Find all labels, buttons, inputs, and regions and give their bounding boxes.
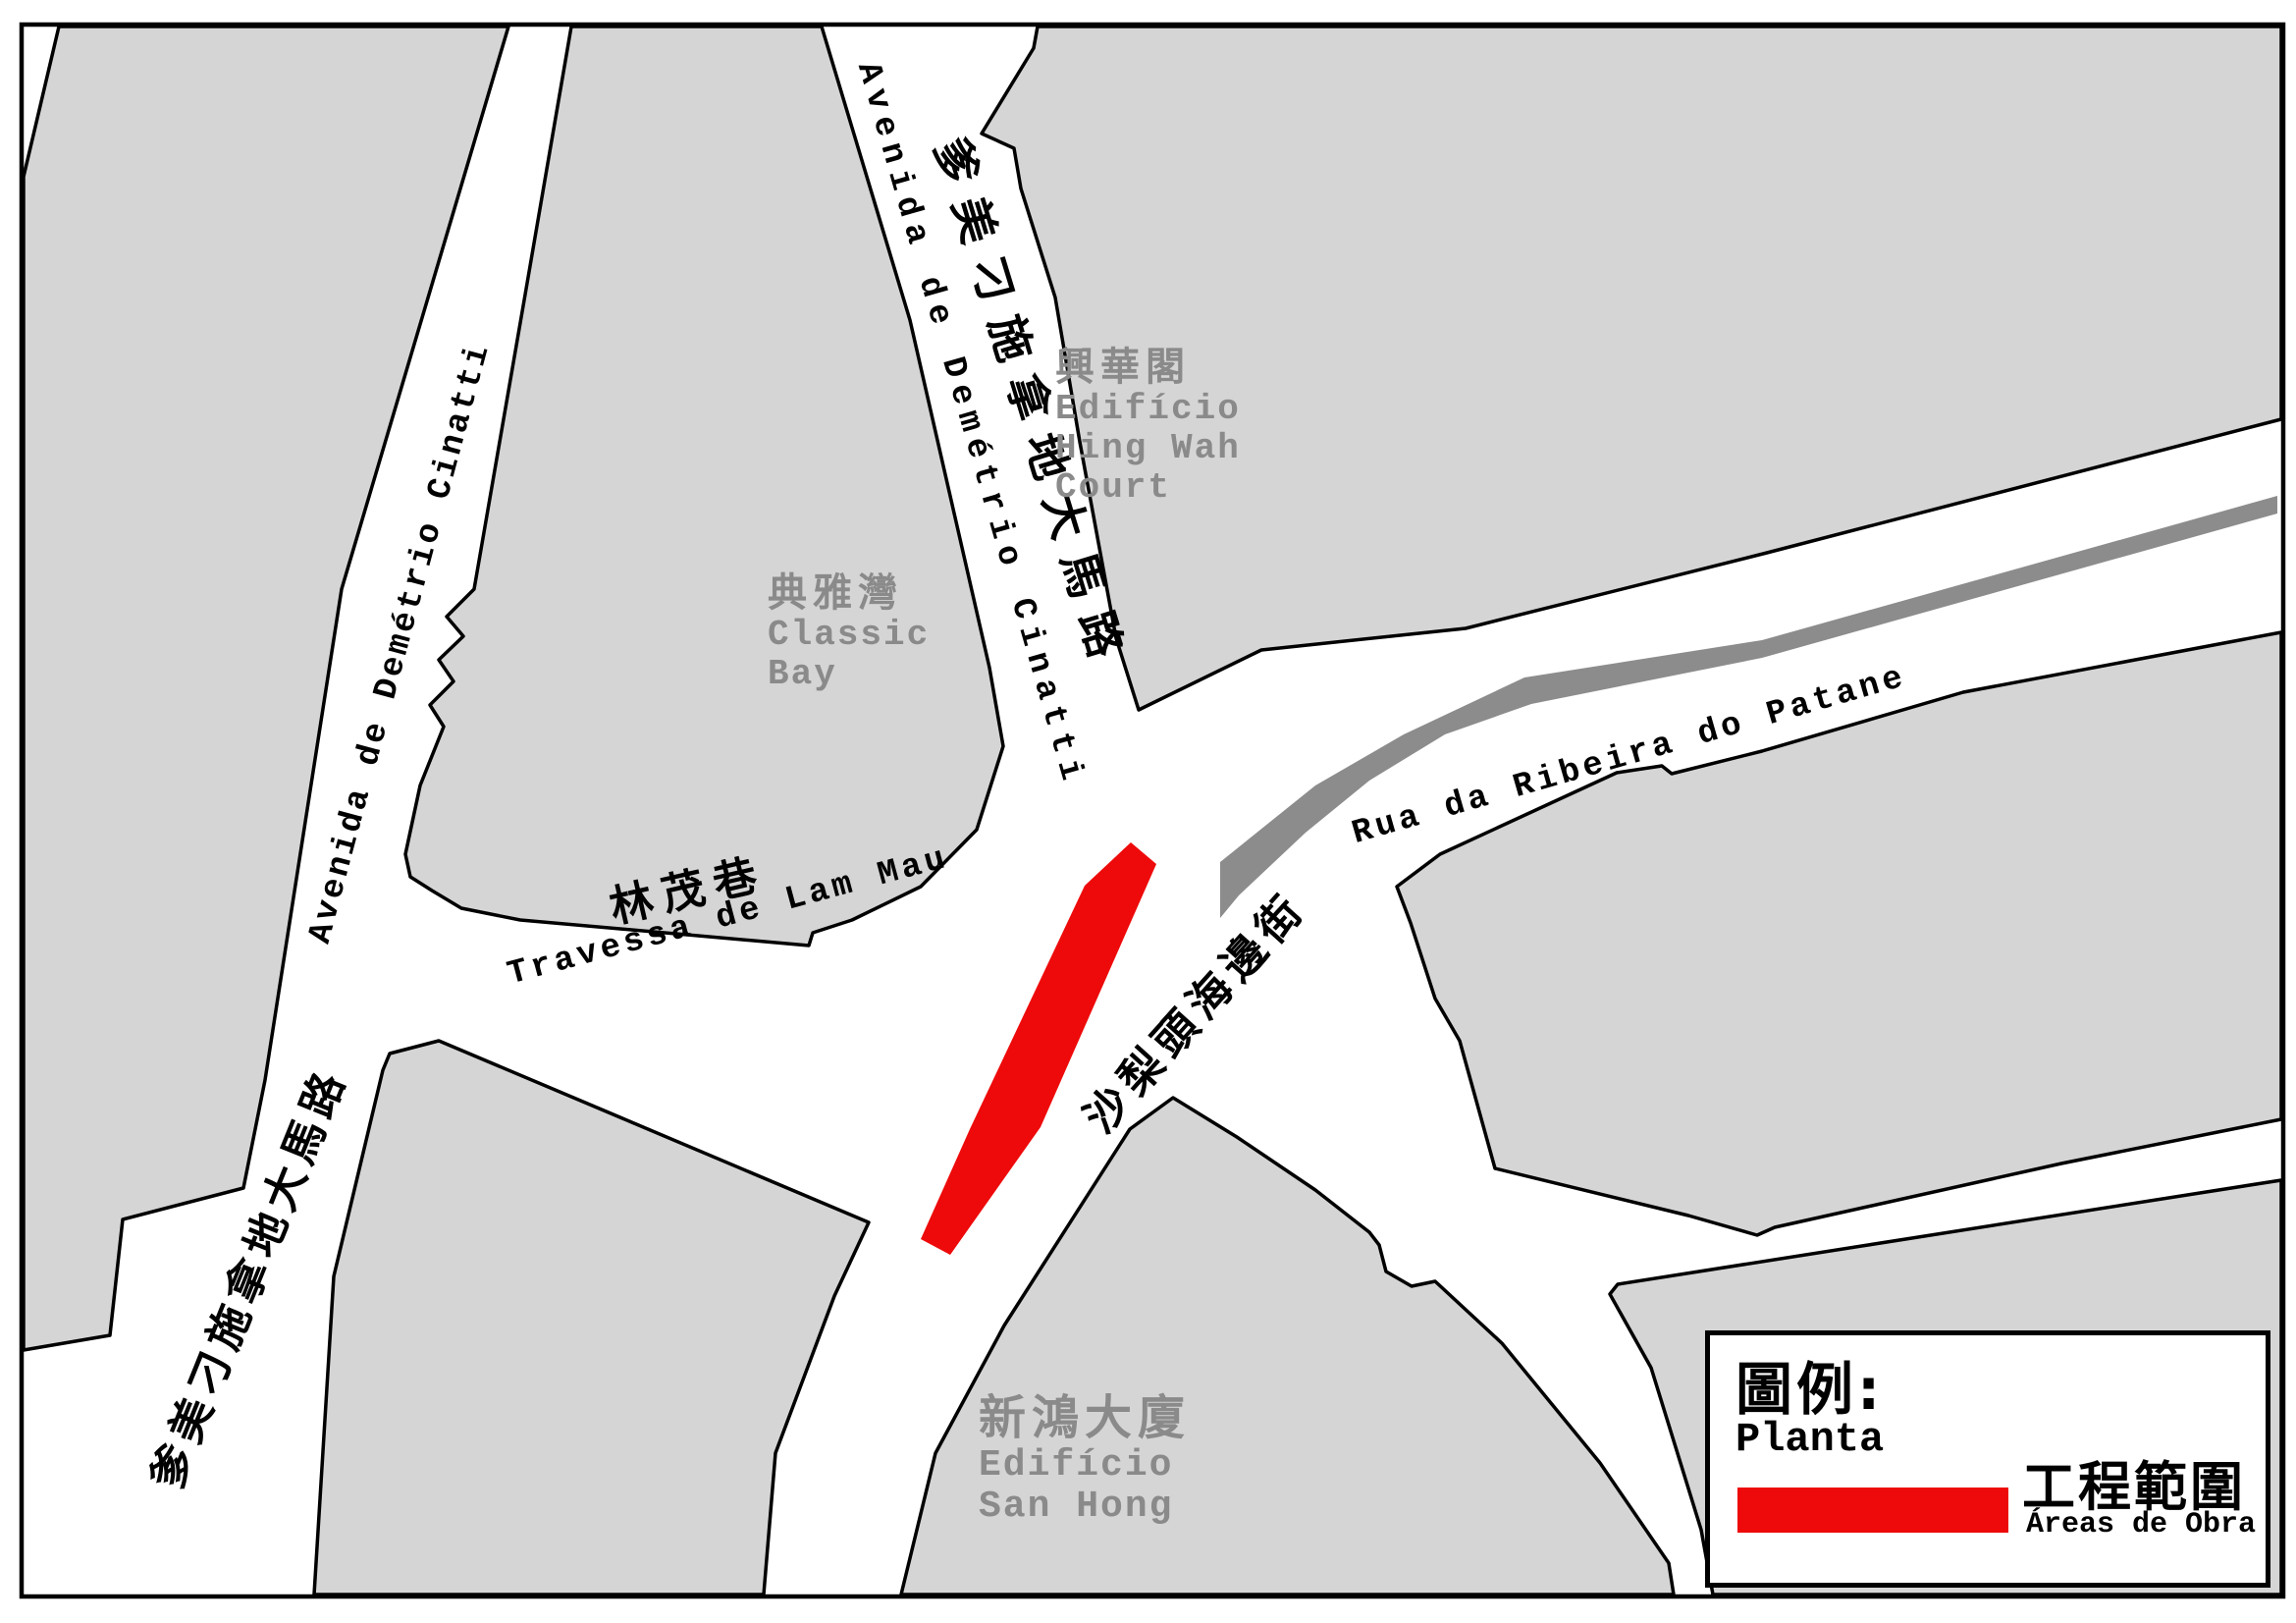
building-label-san-hong: 新鴻大廈 Edifício San Hong bbox=[979, 1392, 1191, 1529]
building-label-hing-wah-pt2: Hing Wah bbox=[1055, 429, 1241, 468]
building-label-classic-bay-pt2: Bay bbox=[768, 655, 930, 694]
building-label-classic-bay-zh: 典雅灣 bbox=[768, 571, 930, 616]
building-label-hing-wah-zh: 興華閣 bbox=[1055, 346, 1241, 390]
building-label-hing-wah: 興華閣 Edifício Hing Wah Court bbox=[1055, 346, 1241, 509]
legend-box: 圖例: Planta 工程範圍 Áreas de Obra bbox=[1705, 1330, 2270, 1588]
building-label-san-hong-zh: 新鴻大廈 bbox=[979, 1392, 1191, 1445]
building-label-hing-wah-pt3: Court bbox=[1055, 468, 1241, 508]
building-label-classic-bay: 典雅灣 Classic Bay bbox=[768, 571, 930, 694]
building-label-san-hong-pt1: Edifício bbox=[979, 1445, 1191, 1488]
legend-item-pt: Áreas de Obra bbox=[2026, 1508, 2256, 1542]
building-label-classic-bay-pt1: Classic bbox=[768, 616, 930, 655]
legend-work-area-swatch bbox=[1737, 1488, 2008, 1533]
legend-title-pt: Planta bbox=[1735, 1416, 1884, 1463]
building-label-hing-wah-pt1: Edifício bbox=[1055, 390, 1241, 429]
legend-title-zh: 圖例: bbox=[1735, 1343, 1884, 1426]
building-label-san-hong-pt2: San Hong bbox=[979, 1487, 1191, 1529]
map-canvas: Avenida de Demétrio Cinatti 爹美刁施拿地大馬路 Av… bbox=[0, 0, 2296, 1623]
